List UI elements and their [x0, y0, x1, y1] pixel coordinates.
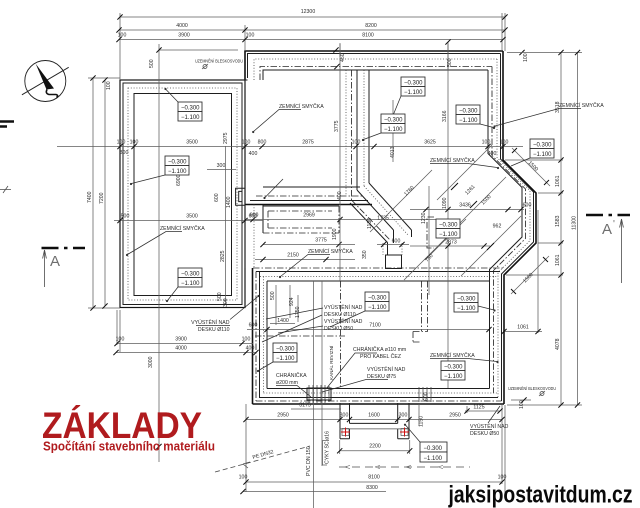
svg-text:−0.300: −0.300	[404, 81, 423, 87]
svg-text:VYÚSTĚNÍ NAD: VYÚSTĚNÍ NAD	[470, 422, 509, 430]
svg-text:PVC DN 150: PVC DN 150	[306, 446, 312, 476]
svg-text:300: 300	[223, 298, 229, 307]
svg-text:−0.300: −0.300	[181, 106, 200, 112]
svg-text:2969: 2969	[303, 213, 315, 219]
svg-text:500: 500	[121, 214, 130, 220]
svg-text:−1.100: −1.100	[168, 169, 187, 175]
svg-text:100: 100	[239, 475, 248, 481]
svg-text:100: 100	[246, 33, 255, 39]
svg-text:924: 924	[289, 297, 295, 306]
svg-text:800: 800	[258, 140, 267, 146]
svg-text:DESKU Ø75: DESKU Ø75	[367, 374, 396, 380]
svg-text:−1.100: −1.100	[439, 232, 458, 238]
svg-text:DESKU Ø50: DESKU Ø50	[324, 326, 353, 332]
svg-text:2873: 2873	[445, 240, 457, 246]
svg-text:300: 300	[120, 150, 129, 156]
svg-text:−1.100: −1.100	[424, 456, 443, 462]
svg-text:Spočítání stavebního materiálu: Spočítání stavebního materiálu	[43, 439, 215, 454]
svg-text:100: 100	[519, 400, 525, 409]
svg-text:−1.100: −1.100	[181, 281, 200, 287]
svg-text:A: A	[50, 253, 60, 270]
svg-text:600: 600	[249, 323, 258, 329]
svg-text:500: 500	[270, 291, 276, 300]
svg-text:7400: 7400	[87, 191, 93, 203]
svg-text:CYKY SC ø16: CYKY SC ø16	[325, 431, 331, 464]
svg-text:UZEMNĚNÍ BLESKOSVODU: UZEMNĚNÍ BLESKOSVODU	[195, 57, 243, 64]
svg-text:600: 600	[250, 213, 259, 219]
svg-text:100: 100	[500, 140, 509, 146]
svg-text:1760: 1760	[403, 185, 415, 197]
svg-text:4078: 4078	[555, 338, 561, 350]
svg-text:100: 100	[352, 140, 361, 146]
svg-text:−1.100: −1.100	[457, 306, 476, 312]
svg-text:−0.300: −0.300	[368, 296, 387, 302]
svg-text:1583: 1583	[555, 215, 561, 227]
svg-text:7100: 7100	[369, 323, 381, 329]
svg-text:1090: 1090	[442, 197, 448, 209]
svg-text:DESKU Ø110: DESKU Ø110	[198, 327, 230, 333]
svg-text:6900: 6900	[176, 174, 182, 186]
svg-text:8100: 8100	[362, 33, 374, 39]
svg-text:100: 100	[118, 33, 127, 39]
svg-text:1150: 1150	[419, 416, 425, 427]
svg-text:3900: 3900	[175, 337, 187, 343]
svg-text:−0.300: −0.300	[168, 160, 187, 166]
svg-text:350: 350	[362, 250, 368, 259]
svg-text:UZEMNĚNÍ BLESKOSVODU: UZEMNĚNÍ BLESKOSVODU	[508, 384, 556, 391]
svg-text:500: 500	[149, 59, 155, 68]
svg-text:−1.100: −1.100	[444, 374, 463, 380]
svg-text:100: 100	[482, 140, 491, 146]
svg-text:−0.300: −0.300	[439, 223, 458, 229]
svg-text:962: 962	[493, 224, 502, 230]
svg-text:−0.300: −0.300	[181, 272, 200, 278]
svg-text:2875: 2875	[302, 140, 314, 146]
svg-text:ZEMNÍCÍ SMYČKA: ZEMNÍCÍ SMYČKA	[430, 157, 475, 164]
svg-text:600: 600	[392, 239, 401, 245]
svg-text:−0.300: −0.300	[533, 143, 552, 149]
svg-text:−1.100: −1.100	[368, 305, 387, 311]
svg-text:1061: 1061	[517, 325, 529, 331]
svg-text:100: 100	[106, 81, 112, 90]
svg-text:300: 300	[399, 413, 408, 419]
svg-text:1400: 1400	[226, 196, 232, 208]
svg-text:400: 400	[249, 151, 258, 157]
svg-text:600: 600	[424, 392, 430, 401]
svg-text:−0.300: −0.300	[459, 109, 478, 115]
svg-text:−1.100: −1.100	[404, 90, 423, 96]
svg-text:2825: 2825	[220, 250, 226, 262]
svg-text:1061: 1061	[555, 175, 561, 187]
svg-text:VYÚSTĚNÍ NAD: VYÚSTĚNÍ NAD	[367, 365, 406, 373]
svg-text:7200: 7200	[99, 192, 105, 204]
svg-text:−0.300: −0.300	[276, 347, 295, 353]
svg-text:100: 100	[130, 140, 139, 146]
svg-text:−0.300: −0.300	[444, 365, 463, 371]
svg-text:1500: 1500	[480, 194, 492, 206]
svg-text:300: 300	[340, 413, 349, 419]
svg-text:1500: 1500	[527, 160, 539, 172]
svg-text:1230: 1230	[421, 212, 427, 224]
svg-text:ZEMNÍCÍ SMYČKA: ZEMNÍCÍ SMYČKA	[559, 102, 604, 109]
svg-text:100: 100	[117, 140, 126, 146]
svg-text:1130: 1130	[367, 218, 373, 229]
svg-text:ZEMNÍCÍ SMYČKA: ZEMNÍCÍ SMYČKA	[430, 352, 475, 359]
svg-text:8200: 8200	[365, 23, 377, 29]
svg-text:1125: 1125	[473, 405, 484, 411]
svg-text:12300: 12300	[301, 9, 316, 15]
svg-text:400: 400	[246, 346, 255, 352]
svg-text:−1.100: −1.100	[384, 127, 403, 133]
svg-text:11300: 11300	[572, 216, 578, 230]
svg-text:': '	[613, 219, 615, 230]
svg-text:300: 300	[217, 163, 226, 169]
svg-text:A: A	[602, 221, 612, 238]
svg-text:2200: 2200	[369, 444, 381, 450]
svg-text:−1.100: −1.100	[533, 152, 552, 158]
svg-text:1900: 1900	[332, 228, 338, 240]
svg-text:450: 450	[340, 53, 346, 62]
svg-text:ZEMNÍCÍ SMYČKA: ZEMNÍCÍ SMYČKA	[308, 248, 353, 255]
svg-text:1500: 1500	[522, 272, 534, 284]
svg-text:100: 100	[498, 475, 507, 481]
svg-text:750: 750	[424, 253, 434, 263]
svg-text:100: 100	[523, 53, 529, 62]
svg-text:jaksipostavitdum.cz: jaksipostavitdum.cz	[448, 482, 633, 508]
svg-text:3166: 3166	[442, 110, 448, 122]
svg-text:400: 400	[337, 191, 343, 200]
svg-text:2950: 2950	[277, 413, 289, 419]
svg-text:2950: 2950	[449, 413, 461, 419]
svg-text:100: 100	[242, 140, 251, 146]
svg-text:400: 400	[488, 151, 497, 157]
svg-text:PRO KABEL ČEZ: PRO KABEL ČEZ	[360, 353, 401, 360]
svg-text:−1.100: −1.100	[459, 118, 478, 124]
svg-text:100: 100	[116, 337, 125, 343]
svg-text:−1.100: −1.100	[181, 115, 200, 121]
svg-text:KANÁL REVIZNÍ: KANÁL REVIZNÍ	[328, 345, 334, 380]
svg-text:−0.300: −0.300	[457, 297, 476, 303]
svg-text:3625: 3625	[424, 140, 436, 146]
svg-text:CHRÁNIČKA: CHRÁNIČKA	[276, 372, 307, 379]
svg-text:CHRÁNIČKA ø110 mm: CHRÁNIČKA ø110 mm	[353, 346, 406, 353]
svg-text:1261: 1261	[464, 184, 476, 196]
svg-text:VYÚSTĚNÍ NAD: VYÚSTĚNÍ NAD	[191, 318, 230, 326]
svg-text:−0.300: −0.300	[384, 118, 403, 124]
svg-text:2975: 2975	[223, 132, 229, 144]
svg-text:8100: 8100	[368, 475, 380, 481]
svg-text:100: 100	[242, 337, 251, 343]
svg-text:−1.100: −1.100	[276, 356, 295, 362]
svg-text:3436: 3436	[459, 203, 471, 209]
svg-text:1600: 1600	[368, 413, 380, 419]
svg-text:3775: 3775	[315, 238, 327, 244]
svg-text:ZEMNÍCÍ SMYČKA: ZEMNÍCÍ SMYČKA	[160, 225, 205, 232]
svg-text:ø200 mm: ø200 mm	[276, 380, 298, 386]
svg-text:2150: 2150	[287, 253, 299, 259]
svg-text:600: 600	[214, 193, 220, 202]
svg-text:4000: 4000	[175, 346, 187, 352]
svg-text:8300: 8300	[366, 485, 378, 491]
svg-text:3500: 3500	[186, 214, 198, 220]
svg-text:ZEMNÍCÍ SMYČKA: ZEMNÍCÍ SMYČKA	[279, 103, 324, 110]
svg-text:1061: 1061	[555, 254, 561, 266]
svg-text:3900: 3900	[178, 33, 190, 39]
svg-text:3175: 3175	[299, 403, 311, 409]
svg-text:4000: 4000	[176, 23, 188, 29]
svg-text:3775: 3775	[334, 120, 340, 132]
svg-text:1400: 1400	[277, 318, 289, 324]
svg-text:VYÚSTĚNÍ NAD: VYÚSTĚNÍ NAD	[324, 303, 363, 311]
svg-text:DESKU Ø50: DESKU Ø50	[470, 431, 499, 437]
svg-text:−0.300: −0.300	[424, 446, 443, 452]
svg-text:600: 600	[523, 203, 532, 209]
svg-text:3000: 3000	[148, 356, 154, 368]
svg-text:3500: 3500	[186, 140, 198, 146]
